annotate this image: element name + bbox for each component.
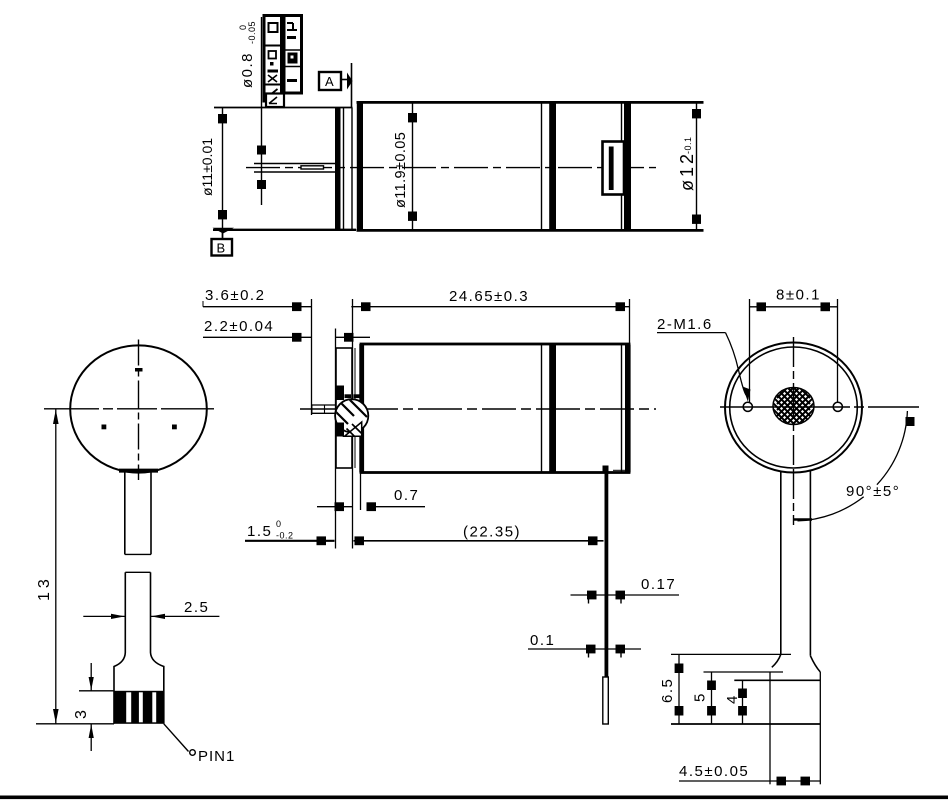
svg-text:4.5±0.05: 4.5±0.05 [679, 763, 749, 780]
svg-text:PIN1: PIN1 [198, 748, 235, 765]
svg-text:0.1: 0.1 [530, 632, 555, 649]
svg-text:0: 0 [276, 519, 282, 529]
svg-text:13: 13 [36, 575, 53, 601]
svg-text:0.17: 0.17 [641, 576, 676, 593]
svg-text:ø0.8: ø0.8 [239, 52, 256, 88]
svg-text:-0.1: -0.1 [683, 136, 693, 154]
svg-text:0.7: 0.7 [394, 487, 419, 504]
svg-text:ø11.9±0.05: ø11.9±0.05 [393, 132, 409, 208]
svg-text:B: B [217, 241, 226, 256]
svg-text:ø12: ø12 [677, 151, 697, 191]
svg-text:2-M1.6: 2-M1.6 [657, 316, 713, 333]
svg-text:8±0.1: 8±0.1 [776, 287, 821, 304]
svg-text:-0.05: -0.05 [247, 21, 257, 44]
svg-text:90°±5°: 90°±5° [846, 483, 900, 500]
svg-text:2.5: 2.5 [184, 599, 209, 616]
svg-text:3: 3 [73, 710, 90, 719]
svg-text:1.5: 1.5 [247, 523, 272, 540]
svg-text:5: 5 [692, 692, 709, 702]
svg-text:ø11±0.01: ø11±0.01 [199, 138, 215, 196]
svg-text:-0.2: -0.2 [276, 531, 294, 541]
svg-text:24.65±0.3: 24.65±0.3 [449, 288, 529, 305]
svg-text:A: A [325, 74, 334, 89]
svg-text:2.2±0.04: 2.2±0.04 [204, 318, 274, 335]
svg-text:3.6±0.2: 3.6±0.2 [205, 287, 265, 304]
svg-text:4: 4 [724, 694, 741, 704]
svg-text:6.5: 6.5 [659, 678, 676, 703]
svg-text:(22.35): (22.35) [463, 524, 521, 541]
